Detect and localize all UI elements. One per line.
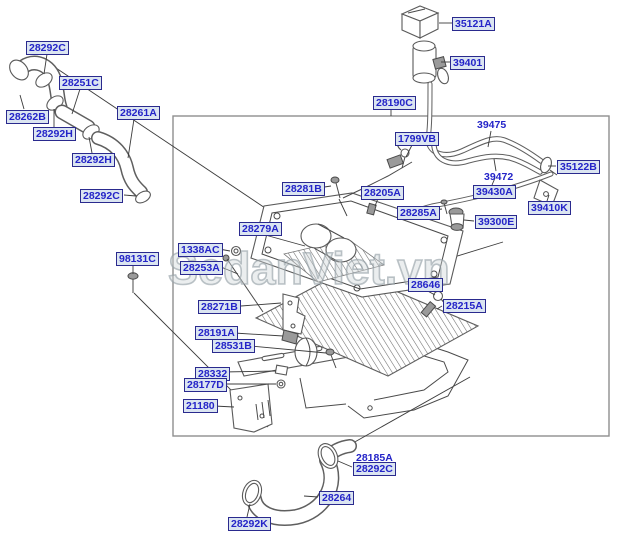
part-label-28191A[interactable]: 28191A xyxy=(195,326,238,340)
part-label-28292C[interactable]: 28292C xyxy=(26,41,69,55)
part-label-28292C[interactable]: 28292C xyxy=(353,462,396,476)
part-label-21180[interactable]: 21180 xyxy=(183,399,218,413)
part-label-28279A[interactable]: 28279A xyxy=(239,222,282,236)
part-label-1338AC[interactable]: 1338AC xyxy=(178,243,223,257)
part-label-28292H[interactable]: 28292H xyxy=(72,153,115,167)
part-label-28215A[interactable]: 28215A xyxy=(443,299,486,313)
part-label-35121A[interactable]: 35121A xyxy=(452,17,495,31)
parts-diagram-page: SedanViet.vn 28292C28251C28262B28292H282… xyxy=(0,0,642,537)
part-label-28205A[interactable]: 28205A xyxy=(361,186,404,200)
part-label-28262B[interactable]: 28262B xyxy=(6,110,49,124)
part-label-28646[interactable]: 28646 xyxy=(408,278,443,292)
part-label-39430A[interactable]: 39430A xyxy=(473,185,516,199)
part-label-39300E[interactable]: 39300E xyxy=(475,215,517,229)
part-label-35122B[interactable]: 35122B xyxy=(557,160,600,174)
part-label-28251C[interactable]: 28251C xyxy=(59,76,102,90)
label-layer: 28292C28251C28262B28292H28261A28292H2829… xyxy=(0,0,642,537)
part-label-28271B[interactable]: 28271B xyxy=(198,300,241,314)
part-label-28292H[interactable]: 28292H xyxy=(33,127,76,141)
part-label-39410K[interactable]: 39410K xyxy=(528,201,571,215)
part-label-28531B[interactable]: 28531B xyxy=(212,339,255,353)
part-label-28285A[interactable]: 28285A xyxy=(397,206,440,220)
part-label-28281B[interactable]: 28281B xyxy=(282,182,325,196)
part-label-28185A: 28185A xyxy=(356,452,393,464)
part-label-28253A[interactable]: 28253A xyxy=(180,261,223,275)
part-label-28292K[interactable]: 28292K xyxy=(228,517,271,531)
part-label-28190C[interactable]: 28190C xyxy=(373,96,416,110)
part-label-28264[interactable]: 28264 xyxy=(319,491,354,505)
part-label-39475: 39475 xyxy=(477,119,506,131)
part-label-28177D[interactable]: 28177D xyxy=(184,378,227,392)
part-label-39472: 39472 xyxy=(484,171,513,183)
part-label-28261A[interactable]: 28261A xyxy=(117,106,160,120)
part-label-1799VB[interactable]: 1799VB xyxy=(395,132,439,146)
part-label-98131C[interactable]: 98131C xyxy=(116,252,159,266)
part-label-39401[interactable]: 39401 xyxy=(450,56,485,70)
part-label-28292C[interactable]: 28292C xyxy=(80,189,123,203)
